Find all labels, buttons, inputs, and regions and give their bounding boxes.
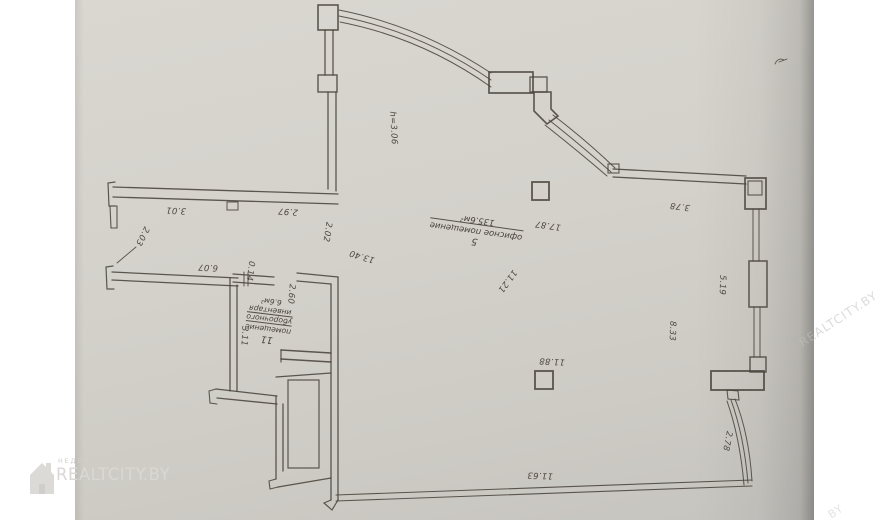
corridor-lower-wall xyxy=(106,266,248,289)
watermark-agency-text: НЕДВИЖИМОСТЬ xyxy=(58,458,138,465)
dimension-label: 3.11 xyxy=(238,326,249,347)
entry-structure xyxy=(489,72,558,124)
dimension-label: 5.19 xyxy=(717,275,728,295)
top-right-wall xyxy=(608,164,746,184)
dimension-label: 3.01 xyxy=(166,204,187,215)
dimension-label: 2.60 xyxy=(285,284,297,305)
dimension-label: h=3.06 xyxy=(387,111,399,145)
dimension-label: 11.88 xyxy=(539,355,565,366)
house-logo-icon xyxy=(30,460,56,496)
leader-line xyxy=(117,247,136,263)
curved-wall-top xyxy=(339,10,615,176)
dimension-label: 6.07 xyxy=(198,261,219,272)
right-lower-block xyxy=(711,371,764,400)
bottom-window-wall xyxy=(336,480,752,501)
column-top xyxy=(532,182,549,200)
dimension-label: 11.63 xyxy=(527,470,553,481)
shaft-walls xyxy=(209,373,331,489)
corridor-upper-wall xyxy=(108,182,338,263)
handwritten-mark xyxy=(775,59,787,64)
left-upper-wall xyxy=(318,5,338,191)
scan-page: 5 офисное помещение 135.6м² 11 помещение… xyxy=(0,0,890,520)
watermark-brand-text: REALTCITY.BY xyxy=(56,465,170,484)
dimension-label: 2.97 xyxy=(278,205,299,216)
column-bottom xyxy=(535,371,553,389)
floor-plan-drawing xyxy=(0,0,890,520)
watermark: НЕДВИЖИМОСТЬ REALTCITY.BY xyxy=(28,452,208,502)
right-wall-windows xyxy=(745,178,767,372)
dimension-label: 8.33 xyxy=(667,321,678,341)
